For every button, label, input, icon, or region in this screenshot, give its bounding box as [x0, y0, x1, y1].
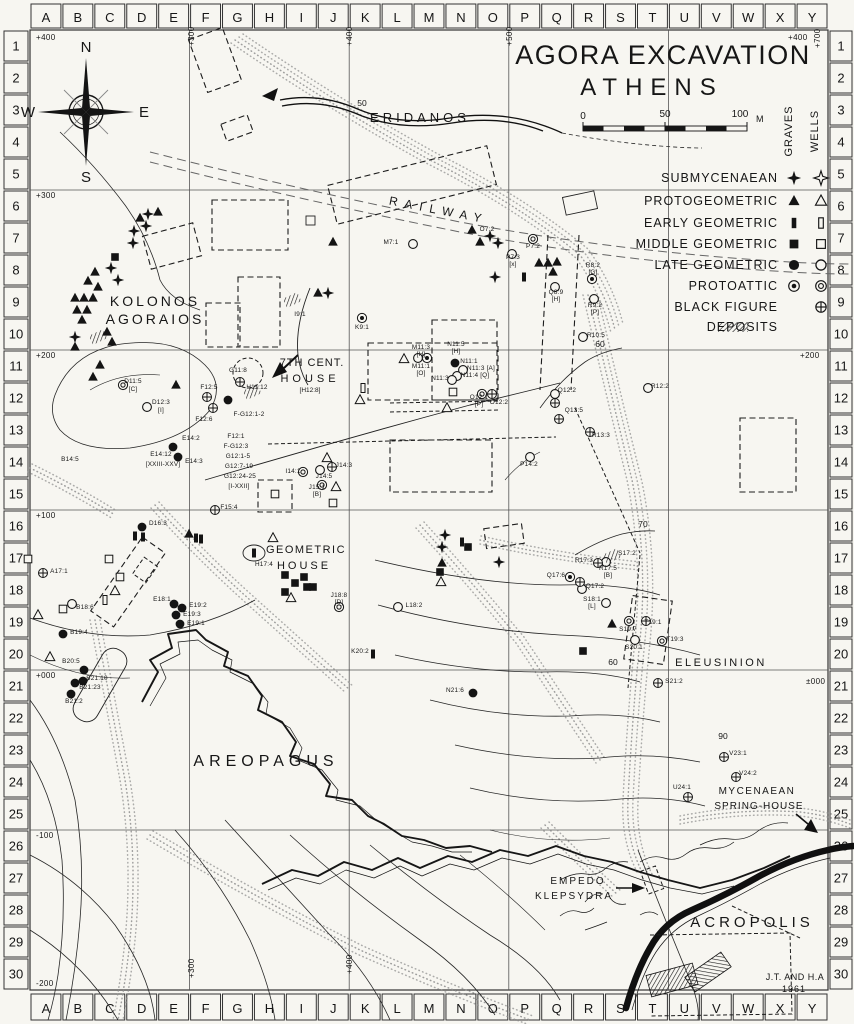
- legend-row-label: PROTOATTIC: [689, 279, 778, 293]
- legend-graves-symbol-icon: [789, 281, 800, 292]
- scale-unit: M: [756, 114, 764, 124]
- grid-col-label: O: [488, 10, 498, 25]
- deposit-label: I9:1: [294, 311, 306, 318]
- place-label: WELLS: [809, 110, 821, 152]
- grid-col-label: M: [424, 10, 435, 25]
- map-symbol-lgo-icon: [409, 240, 418, 249]
- legend-row-label: PROTOGEOMETRIC: [644, 194, 778, 208]
- plan-coordinate-label: +000: [36, 671, 56, 680]
- scale-tick-100: 100: [732, 109, 749, 120]
- deposit-label: G12:24-25: [224, 473, 256, 480]
- deposit-label: E19:1: [187, 620, 205, 627]
- map-symbol-bf-icon: [211, 506, 220, 515]
- deposit-label: E19:3: [183, 611, 201, 618]
- place-label: ELEUSINION: [675, 657, 767, 669]
- map-symbol-lgo-icon: [394, 603, 403, 612]
- map-symbol-lg-icon: [451, 359, 460, 368]
- grid-col-label: N: [456, 10, 465, 25]
- deposit-label: T19:3: [666, 636, 684, 643]
- grid-col-label: A: [42, 1001, 51, 1016]
- legend-wells-symbol-icon: [816, 260, 826, 270]
- grid-col-label: E: [169, 1001, 178, 1016]
- map-symbol-eg-icon: [199, 535, 203, 544]
- map-symbol-lgo-icon: [602, 599, 611, 608]
- map-symbol-mgo-icon: [24, 555, 32, 563]
- map-symbol-bf-icon: [209, 404, 218, 413]
- deposit-label: D16:3: [149, 520, 167, 527]
- map-symbol-pao-icon: [624, 616, 633, 625]
- deposit-label: [D]: [335, 599, 344, 606]
- map-symbol-bf-icon: [203, 393, 212, 402]
- map-subtitle: ATHENS: [580, 74, 724, 101]
- map-symbol-lgo-icon: [68, 600, 77, 609]
- map-symbol-lg-icon: [469, 689, 478, 698]
- grid-col-label: A: [42, 10, 51, 25]
- grid-col-label: M: [424, 1001, 435, 1016]
- legend-wells-symbol-icon: [819, 218, 824, 228]
- map-symbol-mg-icon: [281, 588, 289, 596]
- place-label: AREOPAGUS: [193, 753, 338, 770]
- map-symbol-eg-icon: [141, 533, 145, 542]
- map-symbol-mg-icon: [300, 573, 308, 581]
- place-label: [H12:8]: [300, 387, 321, 394]
- map-symbol-bf-icon: [39, 569, 48, 578]
- place-label: SPRING-HOUSE: [714, 801, 803, 812]
- deposit-label: F12:6: [195, 416, 213, 423]
- deposit-label: [P]: [475, 401, 483, 408]
- deposit-label: O12:1: [470, 394, 489, 401]
- plan-coordinate-label: -200: [36, 979, 54, 988]
- place-label: 7TH CENT.: [280, 357, 345, 369]
- map-symbol-mgo-icon: [116, 573, 124, 581]
- deposit-label: K9:1: [355, 324, 369, 331]
- plan-coordinate-label: +200: [800, 351, 820, 360]
- legend-wells-symbol-icon: [817, 240, 826, 249]
- map-canvas: AABBCCDDEEFFGGHHIIJJKKLLMMNNOOPPQQRRSSTT…: [0, 0, 854, 1024]
- deposit-label: K20:2: [351, 648, 369, 655]
- deposit-label: M11:1: [412, 363, 431, 370]
- grid-row-label: 20: [834, 647, 848, 662]
- deposit-label: Q12:2: [558, 387, 577, 394]
- grid-col-label: B: [74, 10, 83, 25]
- grid-col-label: R: [584, 10, 593, 25]
- deposit-label: F12:5: [200, 384, 218, 391]
- compass-e: E: [139, 104, 149, 121]
- place-label: KOLONOS: [110, 293, 200, 309]
- grid-row-label: 5: [12, 167, 19, 182]
- grid-col-label: F: [202, 10, 210, 25]
- map-symbol-lgo-icon: [448, 376, 457, 385]
- deposit-label: R9:2: [588, 302, 603, 309]
- deposit-label: E19:2: [189, 602, 207, 609]
- contour-value-label: 60: [608, 657, 618, 667]
- deposit-label: F15:4: [220, 504, 238, 511]
- deposit-label: N11:5: [447, 341, 465, 348]
- plan-coordinate-label: +400: [345, 26, 354, 46]
- scale-tick-50: 50: [659, 109, 671, 120]
- grid-col-label: D: [137, 10, 146, 25]
- deposit-label: R8:2: [586, 262, 601, 269]
- grid-row-label: 30: [9, 967, 23, 982]
- deposit-label: E14:2: [182, 435, 200, 442]
- grid-col-label: E: [169, 10, 178, 25]
- grid-row-label: 18: [834, 583, 848, 598]
- grid-row-label: 4: [12, 135, 19, 150]
- deposit-label: I14:1: [285, 468, 300, 475]
- grid-col-label: F: [202, 1001, 210, 1016]
- contour-value-label: 90: [718, 731, 728, 741]
- deposit-label: [O]: [416, 370, 425, 377]
- map-symbol-eg-icon: [522, 273, 526, 282]
- deposit-label: S17:2: [618, 550, 636, 557]
- plan-coordinate-label: +400: [345, 954, 354, 974]
- map-symbol-mg-icon: [579, 647, 587, 655]
- legend-graves-symbol-icon: [790, 240, 799, 249]
- grid-col-label: C: [105, 10, 114, 25]
- map-symbol-mg-icon: [436, 568, 444, 576]
- grid-col-label: B: [74, 1001, 83, 1016]
- map-symbol-mg-icon: [309, 583, 317, 591]
- deposit-label: G11:8: [229, 367, 247, 374]
- grid-row-label: 24: [834, 775, 848, 790]
- place-label: GEOMETRIC: [266, 544, 346, 556]
- grid-row-label: 3: [837, 103, 844, 118]
- plan-coordinate-label: +300: [187, 26, 196, 46]
- deposit-label: G12:1-5: [226, 453, 251, 460]
- map-symbol-bf-icon: [236, 378, 245, 387]
- deposit-label: F12:1: [227, 433, 245, 440]
- grid-row-label: 13: [834, 423, 848, 438]
- grid-row-label: 3: [12, 103, 19, 118]
- map-symbol-eg-icon: [194, 534, 198, 543]
- grid-row-label: 19: [9, 615, 23, 630]
- deposit-label: T19:1: [644, 619, 662, 626]
- grid-col-label: W: [742, 10, 755, 25]
- map-symbol-lg-icon: [59, 630, 68, 639]
- grid-col-label: S: [616, 10, 625, 25]
- deposit-label: S19:7: [619, 626, 637, 633]
- deposit-label: B19:4: [70, 629, 88, 636]
- deposit-label: G12:7-19: [225, 463, 253, 470]
- grid-col-label: T: [648, 1001, 656, 1016]
- map-symbol-mgo-icon: [105, 555, 113, 563]
- deposit-label: [L]: [588, 603, 596, 610]
- plan-coordinate-label: +200: [36, 351, 56, 360]
- scale-tick-0: 0: [580, 111, 586, 122]
- deposit-label: J15:1: [309, 484, 326, 491]
- plan-coordinate-label: +400: [36, 33, 56, 42]
- place-label: ACROPOLIS: [690, 914, 814, 931]
- credit-authors: J.T. AND H.A: [766, 972, 825, 982]
- deposit-label: R13:3: [592, 432, 610, 439]
- map-symbol-lg-icon: [80, 666, 89, 675]
- grid-row-label: 27: [834, 871, 848, 886]
- grid-col-label: R: [584, 1001, 593, 1016]
- place-label: EMPEDO: [550, 876, 605, 887]
- contour-value-label: 60: [595, 339, 605, 349]
- map-symbol-lg-icon: [224, 396, 233, 405]
- plan-coordinate-label: +700: [813, 28, 822, 48]
- grid-row-label: 10: [9, 327, 23, 342]
- deposit-label: [H]: [417, 351, 426, 358]
- legend-row-label: SUBMYCENAEAN: [661, 171, 778, 185]
- plan-coordinate-label: +100: [36, 511, 56, 520]
- grid-col-label: G: [232, 10, 242, 25]
- deposit-label: U24:1: [673, 784, 691, 791]
- deposit-label: P7:2: [526, 243, 540, 250]
- grid-row-label: 23: [9, 743, 23, 758]
- grid-col-label: J: [330, 10, 337, 25]
- grid-row-label: 5: [837, 167, 844, 182]
- grid-row-label: 13: [9, 423, 23, 438]
- map-symbol-bf-icon: [720, 753, 729, 762]
- deposit-label: M11:3: [412, 344, 431, 351]
- deposit-label: B20:5: [62, 658, 80, 665]
- grid-row-label: 15: [9, 487, 23, 502]
- grid-row-label: 16: [9, 519, 23, 534]
- deposit-label: D12:3: [152, 399, 170, 406]
- deposit-label: A17:1: [50, 568, 68, 575]
- deposit-label: B21:2: [65, 698, 83, 705]
- deposit-label: B21:23: [79, 684, 101, 691]
- map-symbol-mg-icon: [281, 571, 289, 579]
- deposit-label: V24:2: [739, 770, 757, 777]
- map-symbol-lg-icon: [176, 620, 185, 629]
- deposit-label: N21:6: [446, 687, 464, 694]
- grid-col-label: U: [680, 1001, 689, 1016]
- deposit-label: [H]: [452, 348, 461, 355]
- deposit-label: [H]: [552, 296, 561, 303]
- grid-col-label: U: [680, 10, 689, 25]
- grid-col-label: C: [105, 1001, 114, 1016]
- grid-row-label: 18: [9, 583, 23, 598]
- place-label: GRAVES: [783, 105, 795, 156]
- grid-row-label: 27: [9, 871, 23, 886]
- grid-col-label: Y: [808, 10, 817, 25]
- deposit-label: Q17:2: [586, 583, 605, 590]
- map-symbol-bf-icon: [555, 415, 564, 424]
- deposit-label: J14:3: [336, 462, 353, 469]
- map-symbol-eg-icon: [371, 650, 375, 659]
- plan-coordinate-label: +500: [505, 26, 514, 46]
- grid-row-label: 17: [834, 551, 848, 566]
- deposit-label: [x]: [509, 261, 516, 268]
- map-symbol-bf-icon: [551, 399, 560, 408]
- map-title: AGORA EXCAVATION: [515, 40, 811, 70]
- deposit-label: R12:2: [651, 383, 669, 390]
- legend-deposits-swatch: [718, 322, 748, 332]
- grid-col-label: I: [300, 10, 304, 25]
- plan-coordinate-label: ±000: [806, 677, 825, 686]
- grid-row-label: 25: [9, 807, 23, 822]
- grid-row-label: 22: [9, 711, 23, 726]
- deposit-label: R17:3: [575, 557, 593, 564]
- deposit-label: E14:3: [185, 458, 203, 465]
- plan-coordinate-label: +400: [788, 33, 808, 42]
- deposit-label: N11:3 [A]: [467, 365, 495, 372]
- map-symbol-mgo-icon: [449, 388, 457, 396]
- compass-s: S: [81, 169, 91, 186]
- grid-row-label: 29: [834, 935, 848, 950]
- deposit-label: N11:4 [Q]: [461, 372, 490, 379]
- grid-row-label: 26: [9, 839, 23, 854]
- deposit-label: M7:1: [383, 239, 398, 246]
- deposit-label: Q17:6: [547, 572, 566, 579]
- agora-map-page: AABBCCDDEEFFGGHHIIJJKKLLMMNNOOPPQQRRSSTT…: [0, 0, 854, 1024]
- deposit-label: [B]: [313, 491, 321, 498]
- grid-row-label: 29: [9, 935, 23, 950]
- grid-row-label: 19: [834, 615, 848, 630]
- contour-value-label: 50: [357, 98, 367, 108]
- credit-year: 1961: [782, 984, 806, 994]
- grid-col-label: Q: [552, 10, 562, 25]
- deposit-label: P7:3: [506, 254, 520, 261]
- place-label: KLEPSYDRA: [535, 891, 613, 902]
- grid-row-label: 17: [9, 551, 23, 566]
- grid-row-label: 9: [12, 295, 19, 310]
- deposit-label: Q8:9: [549, 289, 564, 296]
- deposit-label: L18:2: [406, 602, 423, 609]
- legend-row-label: EARLY GEOMETRIC: [644, 216, 778, 230]
- map-symbol-eg-icon: [252, 549, 256, 558]
- map-symbol-pa-icon: [357, 313, 366, 322]
- map-symbol-mgo-icon: [59, 605, 67, 613]
- deposit-label: O12:2: [490, 399, 509, 406]
- deposit-label: R17:5: [599, 565, 617, 572]
- grid-col-label: V: [712, 1001, 721, 1016]
- grid-row-label: 16: [834, 519, 848, 534]
- grid-col-label: T: [648, 10, 656, 25]
- map-symbol-bf-icon: [684, 793, 693, 802]
- deposit-label: F-G12:3: [224, 443, 249, 450]
- grid-col-label: G: [232, 1001, 242, 1016]
- legend-wells-symbol-icon: [816, 302, 826, 312]
- grid-row-label: 21: [9, 679, 23, 694]
- grid-row-label: 8: [837, 263, 844, 278]
- map-symbol-lg-icon: [71, 679, 80, 688]
- deposit-label: B14:5: [61, 456, 79, 463]
- map-symbol-bf-icon: [488, 390, 497, 399]
- grid-row-label: 6: [12, 199, 19, 214]
- legend-row-label: MIDDLE GEOMETRIC: [636, 237, 778, 251]
- plan-coordinate-label: +300: [36, 191, 56, 200]
- legend-wells-symbol-icon: [816, 281, 827, 292]
- grid-row-label: 14: [9, 455, 23, 470]
- map-symbol-ego-icon: [103, 596, 107, 605]
- grid-col-label: V: [712, 10, 721, 25]
- map-symbol-lg-icon: [172, 611, 181, 620]
- grid-row-label: 30: [834, 967, 848, 982]
- deposit-label: J14:5: [316, 473, 333, 480]
- grid-row-label: 11: [9, 359, 23, 374]
- grid-row-label: 6: [837, 199, 844, 214]
- map-symbol-mg-icon: [111, 253, 119, 261]
- deposit-label: E14:12: [150, 451, 172, 458]
- map-symbol-lg-icon: [170, 600, 179, 609]
- grid-col-label: K: [361, 1001, 370, 1016]
- deposit-label: [C]: [129, 386, 138, 393]
- compass-n: N: [81, 39, 92, 56]
- grid-row-label: 1: [12, 39, 19, 54]
- deposit-label: [G]: [588, 269, 597, 276]
- grid-row-label: 2: [12, 71, 19, 86]
- grid-col-label: K: [361, 10, 370, 25]
- compass-w: W: [21, 104, 36, 121]
- deposit-label: B21:10: [86, 675, 108, 682]
- grid-row-label: 14: [834, 455, 848, 470]
- deposit-label: N11:3: [431, 375, 449, 382]
- grid-col-label: L: [393, 1001, 400, 1016]
- map-symbol-eg-icon: [133, 532, 137, 541]
- deposit-label: Q13:5: [565, 407, 584, 414]
- legend-row-label: LATE GEOMETRIC: [654, 258, 778, 272]
- legend-row-label: BLACK FIGURE: [674, 300, 778, 314]
- deposit-label: F-G12:1-2: [234, 411, 265, 418]
- grid-row-label: 4: [837, 135, 844, 150]
- grid-row-label: 7: [12, 231, 19, 246]
- legend-graves-symbol-icon: [792, 218, 797, 228]
- place-label: HOUSE: [280, 373, 339, 385]
- deposit-label: [XXIII-XXV]: [146, 461, 181, 468]
- plan-coordinate-label: +300: [187, 958, 196, 978]
- grid-row-label: 2: [837, 71, 844, 86]
- map-symbol-mgo-icon: [329, 499, 337, 507]
- deposit-label: [I-XXII]: [228, 483, 249, 490]
- grid-row-label: 12: [834, 391, 848, 406]
- grid-row-label: 22: [834, 711, 848, 726]
- grid-row-label: 10: [834, 327, 848, 342]
- map-symbol-pa-icon: [565, 572, 574, 581]
- deposit-label: S21:2: [665, 678, 683, 685]
- map-symbol-eg-icon: [460, 538, 464, 547]
- map-symbol-bf-icon: [576, 578, 585, 587]
- grid-row-label: 23: [834, 743, 848, 758]
- grid-row-label: 24: [9, 775, 23, 790]
- grid-col-label: J: [330, 1001, 337, 1016]
- grid-row-label: 28: [9, 903, 23, 918]
- grid-row-label: 12: [9, 391, 23, 406]
- map-symbol-lg-icon: [138, 523, 147, 532]
- deposit-label: J18:8: [331, 592, 348, 599]
- map-symbol-bf-icon: [654, 679, 663, 688]
- contour-value-label: 70: [638, 519, 648, 529]
- grid-row-label: 7: [837, 231, 844, 246]
- grid-row-label: 21: [834, 679, 848, 694]
- deposit-label: O7:2: [480, 226, 495, 233]
- deposit-label: S20:1: [625, 644, 643, 651]
- grid-row-label: 20: [9, 647, 23, 662]
- place-label: ERIDANOS: [370, 110, 470, 125]
- map-symbol-lgo-icon: [143, 403, 152, 412]
- grid-col-label: N: [456, 1001, 465, 1016]
- grid-col-label: W: [742, 1001, 755, 1016]
- deposit-label: N11:1: [460, 358, 478, 365]
- grid-row-label: 8: [12, 263, 19, 278]
- grid-col-label: X: [776, 10, 785, 25]
- deposit-label: B18:6: [76, 604, 94, 611]
- grid-col-label: D: [137, 1001, 146, 1016]
- grid-row-label: 15: [834, 487, 848, 502]
- plan-coordinate-label: -100: [36, 831, 54, 840]
- grid-col-label: P: [520, 10, 529, 25]
- legend-graves-symbol-icon: [789, 260, 799, 270]
- grid-row-label: 1: [837, 39, 844, 54]
- map-symbol-mg-icon: [291, 579, 299, 587]
- deposit-label: H17:4: [255, 561, 273, 568]
- grid-col-label: O: [488, 1001, 498, 1016]
- map-symbol-mgo-icon: [271, 490, 279, 498]
- deposit-label: P14:2: [520, 461, 538, 468]
